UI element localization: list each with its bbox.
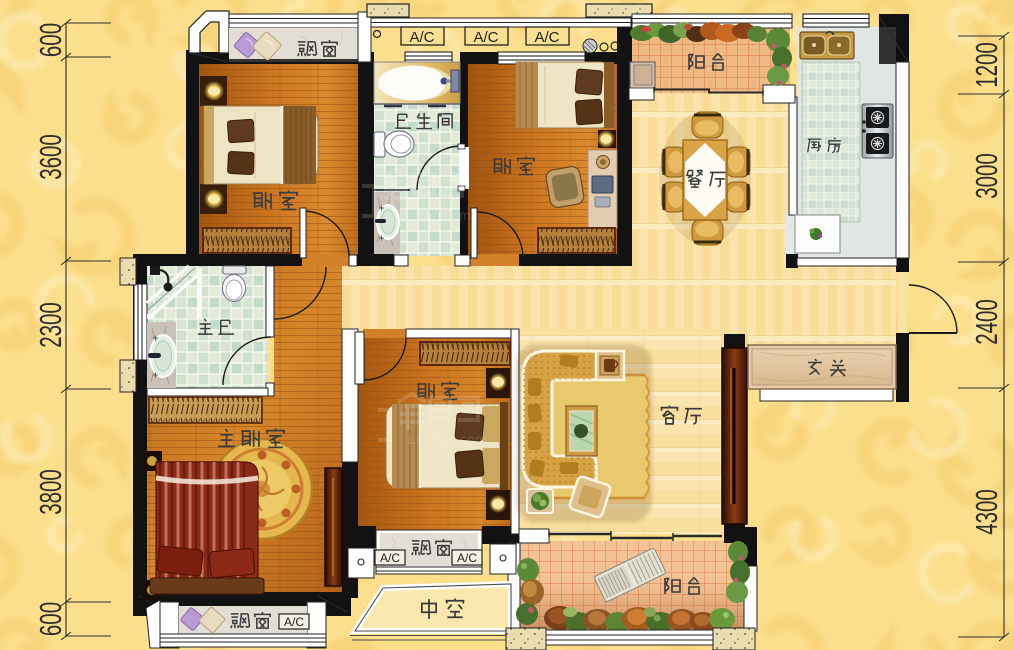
svg-text:4300: 4300 — [969, 489, 1004, 535]
svg-text:A/C: A/C — [473, 29, 498, 46]
svg-text:LouPan.com: LouPan.com — [392, 207, 471, 223]
svg-text:3600: 3600 — [33, 134, 68, 180]
svg-text:600: 600 — [33, 602, 68, 636]
svg-text:3800: 3800 — [33, 469, 68, 515]
svg-text:A/C: A/C — [534, 29, 559, 46]
svg-text:600: 600 — [33, 23, 68, 57]
svg-text:2300: 2300 — [33, 302, 68, 348]
svg-text:A/C: A/C — [457, 551, 477, 565]
svg-text:A/C: A/C — [380, 551, 400, 565]
svg-text:LouPan.com: LouPan.com — [408, 431, 487, 447]
svg-text:A/C: A/C — [284, 615, 304, 629]
svg-text:3000: 3000 — [969, 153, 1004, 199]
svg-text:1200: 1200 — [969, 42, 1004, 88]
svg-text:A/C: A/C — [409, 29, 434, 46]
svg-text:2400: 2400 — [969, 299, 1004, 345]
